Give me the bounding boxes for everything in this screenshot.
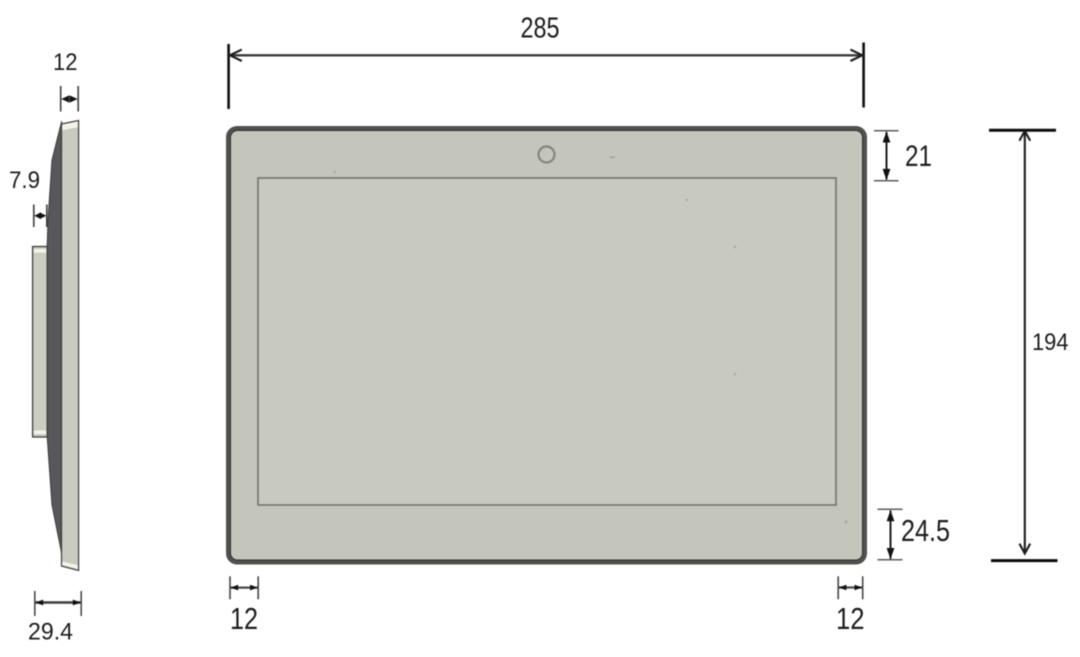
svg-text:24.5: 24.5 — [901, 513, 950, 548]
svg-text:21: 21 — [905, 140, 932, 173]
svg-text:7.9: 7.9 — [9, 167, 40, 194]
svg-text:12: 12 — [836, 601, 865, 636]
svg-text:12: 12 — [53, 49, 78, 76]
svg-text:12: 12 — [230, 601, 258, 636]
svg-text:29.4: 29.4 — [28, 619, 73, 646]
svg-text:194: 194 — [1032, 329, 1069, 356]
svg-text:285: 285 — [521, 13, 560, 45]
